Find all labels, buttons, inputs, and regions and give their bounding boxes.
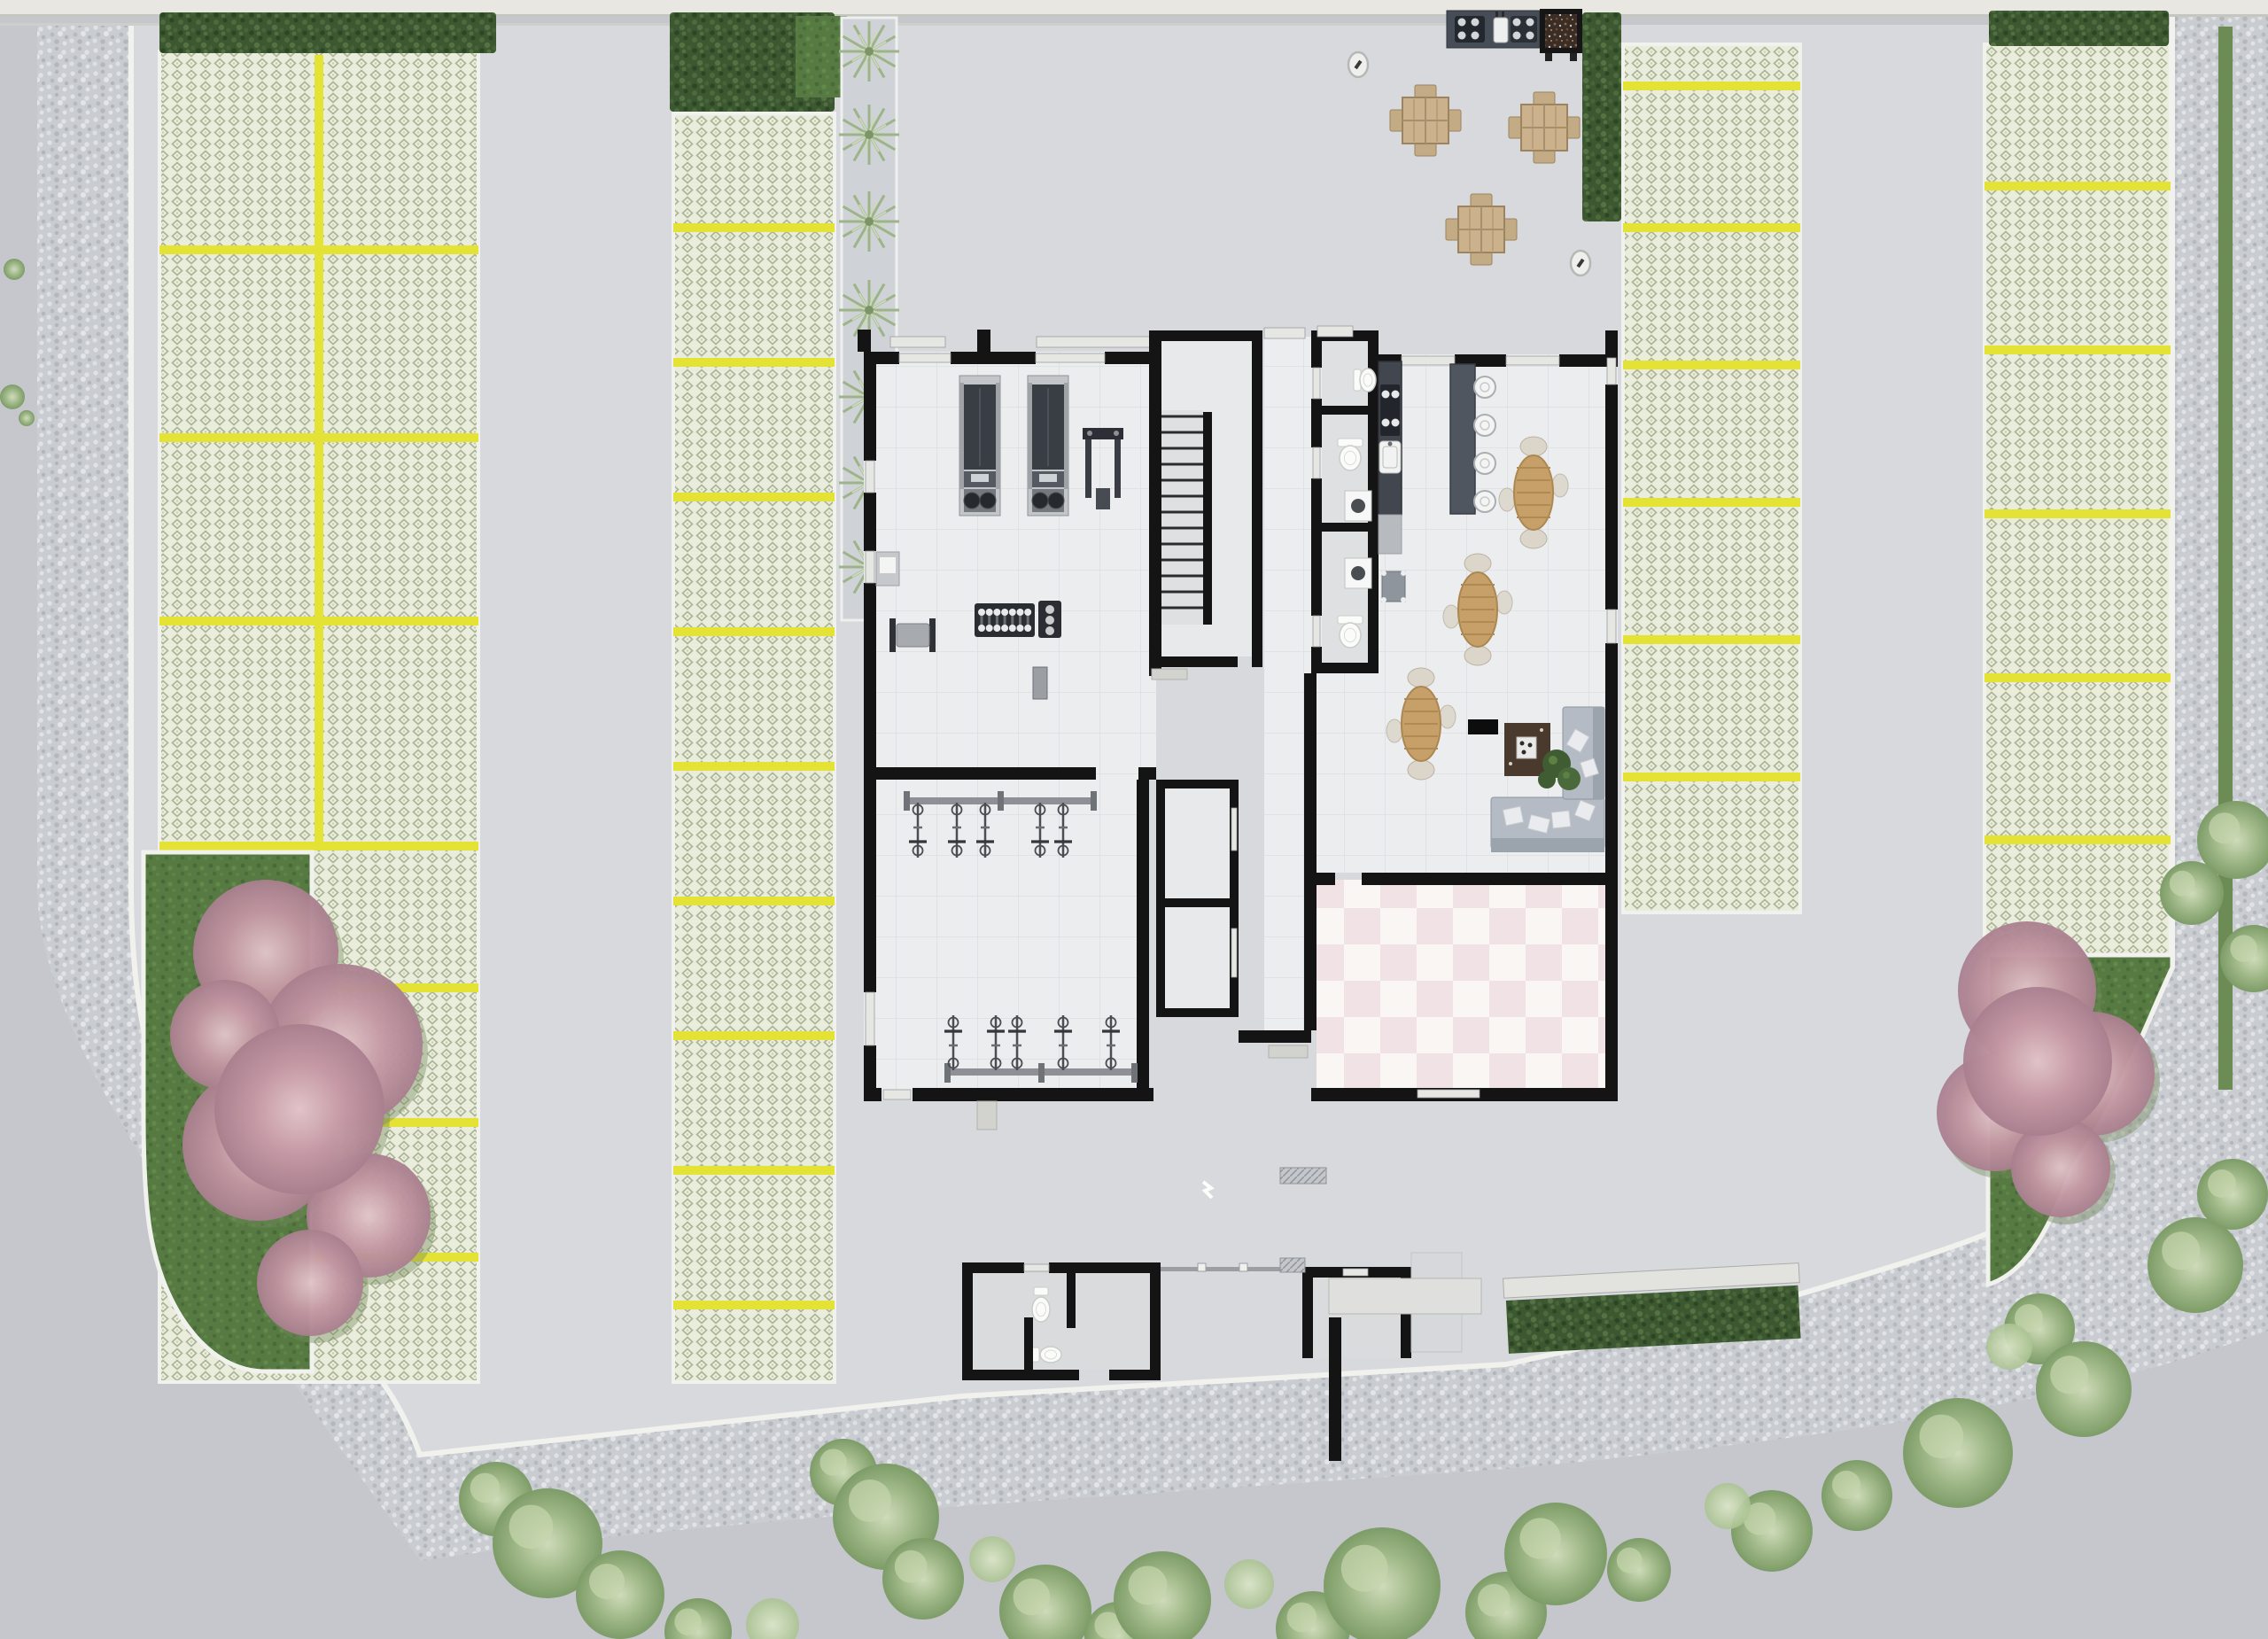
dining-chair: [1520, 529, 1547, 548]
burner-icon: [1526, 32, 1534, 40]
grass-patch: [796, 16, 847, 97]
shrub-highlight: [470, 1473, 501, 1503]
grill-leg: [1545, 53, 1552, 61]
bar-stool: [1474, 415, 1495, 436]
burner-icon: [1458, 19, 1466, 27]
parking-line: [315, 55, 323, 847]
rear-boundary: [1503, 1263, 1803, 1354]
plate: [1045, 616, 1054, 625]
bench-pad: [897, 624, 929, 647]
dumbbell: [1001, 609, 1008, 616]
restroom-block-window: [1024, 1264, 1049, 1271]
parking-line: [1623, 82, 1800, 90]
basin: [1351, 566, 1365, 580]
rack-post: [1091, 791, 1097, 811]
dining-chair: [1440, 705, 1456, 728]
dining-chair: [1443, 605, 1459, 628]
parking-line: [159, 245, 478, 254]
decor-dot: [1509, 762, 1512, 765]
dumbbell: [1009, 625, 1016, 632]
parking-line: [673, 627, 835, 636]
console-screen: [1039, 474, 1057, 482]
patio-chair: [1566, 117, 1580, 138]
shrub-highlight: [1920, 1415, 1964, 1459]
parking-line: [1623, 361, 1800, 369]
toilet-bowl: [1340, 623, 1361, 648]
grass-tuft: [1986, 1324, 2032, 1370]
shrub-highlight: [1014, 1579, 1051, 1616]
treadmill-rail: [996, 383, 1000, 489]
site-plan-stage: [0, 0, 2268, 1639]
toilet: [1032, 1287, 1050, 1322]
south-window: [1417, 1090, 1480, 1098]
shrub-highlight: [1832, 1471, 1860, 1499]
sofa-back: [1491, 838, 1604, 852]
kids-room-checkered-floor: [1317, 880, 1605, 1092]
chair-dot: [1401, 597, 1406, 602]
parking-line: [1984, 673, 2171, 682]
shrub-highlight: [509, 1505, 554, 1550]
site-plan-rendering: [0, 0, 2268, 1639]
shrub-highlight: [1129, 1566, 1168, 1605]
upright: [1115, 439, 1121, 498]
dumbbell: [1024, 625, 1031, 632]
dumbbell: [986, 625, 993, 632]
burner-icon: [1382, 391, 1390, 399]
hedge: [1989, 11, 2169, 46]
dumbbell: [1001, 625, 1008, 632]
towel-stack: [880, 557, 896, 573]
dining-chair: [1552, 474, 1568, 497]
treadmill-rail: [1064, 383, 1068, 489]
burner-icon: [1526, 19, 1534, 27]
stall-door: [1313, 616, 1320, 647]
plate-rack: [1038, 601, 1061, 638]
shrub: [1821, 1460, 1892, 1531]
shrub: [2148, 1217, 2243, 1313]
parking-line: [673, 223, 835, 232]
dumbbell: [978, 609, 985, 616]
toilet-bowl: [1360, 369, 1376, 392]
shrub-highlight: [1519, 1518, 1560, 1558]
hedge: [159, 12, 496, 53]
bench-post: [929, 618, 936, 652]
patio-chair: [1471, 252, 1492, 265]
parking-line: [159, 842, 478, 851]
chair-dot: [1401, 571, 1406, 576]
shrub: [1903, 1398, 2013, 1508]
door-mat: [1269, 1045, 1308, 1058]
shrub-highlight: [2162, 1231, 2200, 1270]
washbasin: [1345, 491, 1371, 521]
bike-room-window: [866, 992, 874, 1045]
burner-icon: [1513, 19, 1521, 27]
patio-chair: [1448, 110, 1461, 131]
shrub-highlight: [849, 1480, 891, 1522]
grass-tuft: [1224, 1559, 1274, 1609]
burner-icon: [1392, 391, 1400, 399]
shrub-highlight: [2170, 871, 2195, 897]
burner-icon: [1392, 419, 1400, 427]
street-tuft: [0, 385, 25, 409]
drain-grate: [1280, 1258, 1305, 1272]
street-tuft: [19, 410, 35, 426]
washbasin: [1345, 558, 1371, 588]
parking-line: [673, 762, 835, 771]
drain-grate: [1280, 1168, 1326, 1184]
roller: [980, 493, 996, 509]
shrub: [1607, 1538, 1671, 1602]
storage-door: [1231, 928, 1237, 977]
shrub-highlight: [2230, 935, 2256, 961]
dining-chair: [1520, 437, 1547, 456]
entry-glazing: [1264, 328, 1305, 338]
treadmill-rail: [959, 383, 964, 489]
yucca-center: [865, 130, 874, 139]
shrub-highlight: [895, 1550, 928, 1583]
facade-glazing: [1037, 337, 1152, 347]
grass-strip: [2218, 27, 2233, 1090]
service-table: [1382, 571, 1405, 602]
gym-window: [1036, 353, 1105, 362]
treadmill-rail: [1028, 383, 1032, 489]
shrub: [2197, 1159, 2268, 1230]
stair-exit-mat: [1152, 669, 1187, 680]
burner-icon: [1472, 32, 1480, 40]
bike-room-floor: [864, 780, 1149, 1100]
facade-glazing: [890, 337, 945, 347]
bar-stool: [1474, 377, 1495, 398]
right-parking-strip-a: [1623, 44, 1800, 913]
faucet-icon: [1388, 442, 1393, 447]
shelter-window: [1343, 1269, 1368, 1276]
toilet-bowl: [1040, 1347, 1061, 1363]
toilet-tank: [1034, 1287, 1048, 1295]
patio-chair: [1509, 117, 1522, 138]
sofa-chaise-back: [1593, 707, 1604, 799]
patio-chair: [1446, 219, 1459, 240]
patio-chair: [1415, 143, 1436, 156]
east-window: [1607, 358, 1616, 385]
grass-tuft: [1705, 1483, 1751, 1529]
patio-chair: [1534, 92, 1555, 105]
dumbbell: [1009, 609, 1016, 616]
dining-chair: [1408, 668, 1434, 687]
shrub-highlight: [1287, 1603, 1317, 1633]
party-room-window: [1402, 356, 1455, 365]
rack-post: [904, 791, 910, 811]
parking-line: [159, 433, 478, 442]
upright: [1085, 439, 1091, 498]
bar-stool: [1474, 491, 1495, 512]
stall-door: [1313, 447, 1320, 478]
parking-line: [1984, 509, 2171, 518]
toilet: [1338, 439, 1363, 470]
dining-chair: [1464, 554, 1491, 573]
gym-side-window: [866, 461, 874, 493]
burner-icon: [1472, 19, 1480, 27]
dining-chair: [1386, 719, 1402, 742]
dumbbell-rack: [975, 603, 1035, 637]
gym-floor: [864, 352, 1156, 780]
plate-stand: [1033, 667, 1047, 699]
east-window: [1607, 610, 1616, 643]
patio-chair: [1415, 85, 1436, 98]
right-parking-strip-b: [1984, 44, 2171, 955]
shrub: [576, 1550, 664, 1639]
tv-panel: [1468, 719, 1498, 734]
shrub-highlight: [1478, 1584, 1511, 1617]
shrub-highlight: [674, 1608, 701, 1635]
shrub-highlight: [2050, 1355, 2088, 1394]
pink-tree-canopy: [214, 1024, 384, 1194]
grill-grate: [1545, 14, 1577, 48]
seat: [1096, 488, 1110, 509]
burner-icon: [1513, 32, 1521, 40]
patio-chair: [1390, 110, 1403, 131]
burner-icon: [1458, 32, 1466, 40]
toilet: [1354, 369, 1376, 392]
gym-window: [899, 353, 951, 362]
pulley: [1087, 431, 1092, 436]
basin: [1351, 499, 1365, 513]
toilet: [1031, 1347, 1061, 1363]
left-parking-strip-b: [673, 113, 835, 1382]
parking-line: [1623, 498, 1800, 507]
dumbbell: [986, 609, 993, 616]
treadmill: [1028, 376, 1068, 516]
parking-line: [673, 358, 835, 367]
shrub-highlight: [2208, 1169, 2236, 1198]
parking-line: [673, 897, 835, 905]
patio-chair: [1503, 219, 1517, 240]
rack-post: [1131, 1063, 1138, 1083]
parking-line: [1984, 346, 2171, 354]
decor-dot: [1522, 750, 1526, 755]
toilet: [1338, 616, 1363, 648]
rack-post: [998, 791, 1004, 811]
kitchen-counter: [1379, 361, 1402, 515]
yucca-center: [865, 47, 874, 56]
parking-line: [1984, 182, 2171, 190]
dumbbell: [1024, 609, 1031, 616]
pulley: [1114, 431, 1119, 436]
chair-dot: [1381, 571, 1386, 576]
parking-line: [1623, 223, 1800, 232]
dining-chair: [1499, 488, 1515, 511]
dumbbell: [993, 625, 1000, 632]
door-mat: [977, 1101, 997, 1130]
dumbbell: [1017, 625, 1024, 632]
shrub: [2160, 861, 2224, 925]
hedge: [1582, 12, 1621, 221]
pink-tree-canopy: [1963, 987, 2112, 1136]
decor-dot: [1528, 743, 1533, 748]
patio-chair: [1471, 194, 1492, 207]
shrub-highlight: [819, 1449, 846, 1475]
parking-line: [1623, 773, 1800, 781]
shrub-highlight: [2209, 812, 2240, 843]
toilet-bowl: [1032, 1297, 1050, 1322]
burner-icon: [1382, 419, 1390, 427]
storage-door: [1231, 808, 1237, 851]
gym-side-window: [866, 551, 874, 583]
grass-tuft: [969, 1536, 1015, 1582]
parking-line: [1984, 835, 2171, 844]
shrub: [882, 1538, 964, 1620]
roller: [964, 493, 980, 509]
lower-cabinet: [1379, 515, 1402, 554]
parking-line: [673, 1031, 835, 1040]
shrub-highlight: [1617, 1548, 1643, 1573]
decor-dot: [1520, 742, 1525, 746]
plate: [1045, 626, 1054, 635]
bbq-sink: [1494, 18, 1508, 43]
parking-line: [673, 493, 835, 501]
bar-island: [1450, 364, 1475, 514]
parking-line: [1623, 635, 1800, 644]
grill-leg: [1570, 53, 1577, 61]
dumbbell: [993, 609, 1000, 616]
faucet-icon: [1495, 12, 1498, 17]
chair-dot: [1381, 597, 1386, 602]
faucet-icon: [1502, 12, 1504, 17]
restroom-window: [1317, 326, 1353, 337]
dining-chair: [1464, 646, 1491, 665]
bench-post: [889, 618, 896, 652]
parking-line: [159, 617, 478, 625]
pink-tree-canopy: [257, 1230, 363, 1336]
stall-door: [1313, 368, 1320, 399]
shrub-highlight: [589, 1564, 625, 1599]
treadmill: [959, 376, 1000, 516]
plate: [1045, 605, 1054, 614]
coffee-tray: [1517, 737, 1536, 758]
shrub-highlight: [1341, 1545, 1388, 1592]
parking-line: [673, 1301, 835, 1309]
dining-chair: [1408, 760, 1434, 780]
dumbbell: [1017, 609, 1024, 616]
roller: [1048, 493, 1064, 509]
shrub: [1504, 1503, 1607, 1605]
shrub: [2036, 1341, 2132, 1437]
parking-line: [673, 1166, 835, 1175]
top-curb-band: [0, 0, 2268, 14]
roller: [1032, 493, 1048, 509]
yucca-center: [865, 306, 874, 315]
yucca-center: [865, 217, 874, 226]
toilet-bowl: [1340, 446, 1361, 470]
bar-stool: [1474, 453, 1495, 474]
console-screen: [971, 474, 989, 482]
decor-dot: [1540, 728, 1543, 732]
rack-post: [1038, 1063, 1045, 1083]
dining-chair: [1496, 591, 1512, 614]
street-tuft: [4, 259, 25, 280]
party-room-window: [1506, 356, 1559, 365]
patio-chair: [1534, 150, 1555, 163]
bike-room-door: [883, 1090, 911, 1099]
dumbbell: [978, 625, 985, 632]
